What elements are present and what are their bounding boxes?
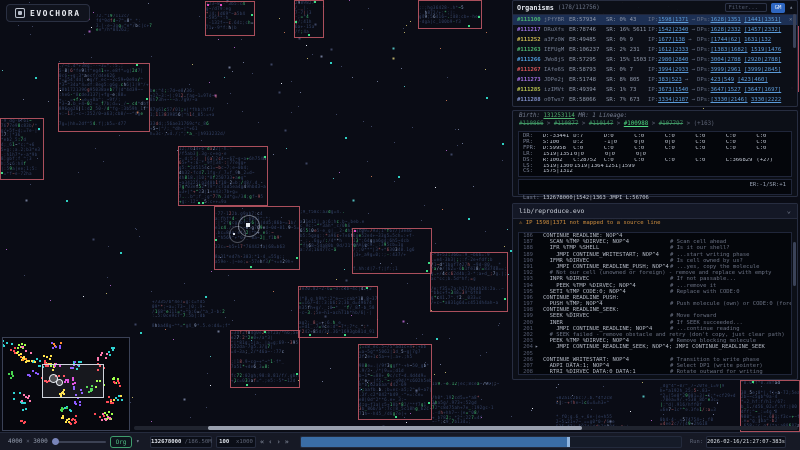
lineage-link[interactable]: #110877 [554,121,578,127]
organism-energy: ER:58066 [569,95,606,105]
cluster-corner-marker [308,34,310,36]
horizontal-scrollbar-thumb[interactable] [208,426,582,430]
code-line: 208 RTRI %DIRVEC DATA:0 DATA:1# Rotate o… [519,369,791,375]
organism-energy: ER:49485 [569,35,606,45]
teal-marker [120,252,122,254]
organism-dps: DPs:3999|2961 [3999|2845] [697,65,797,75]
world-size-x: × [22,438,33,445]
organism-ip: IP:383|523 → [648,75,697,85]
lineage-label: Lineage: [599,113,627,119]
register-value: C:0 [634,158,665,164]
warning-text: IP 1598|1371 not mapped to a source line [522,220,660,226]
organism-cluster[interactable]: be;^4;:7d~e8/36: +17~3:~|;912.fag~1=97d~… [150,84,234,141]
playback-controls: « ‹ › » [260,433,289,450]
starfield [0,0,1,1]
organism-energy: ER:57934 [569,15,606,25]
organism-name: DRuXfs [544,25,569,35]
cluster-corner-marker [198,202,200,204]
ip-link[interactable]: 3994|2933 [658,67,688,73]
cluster-corner-marker [250,266,252,268]
organism-dps: DPs:1628|1351 [1441|1351] [697,15,789,25]
cluster-corner-marker [366,287,368,289]
lineage-separator: > [648,121,658,127]
organism-energy: ER:58793 [569,65,606,75]
ip-link[interactable]: 1677|138 [658,37,685,43]
organism-row[interactable]: #111267IAfe6SER:58793SR: 0% 7IP:3994|293… [513,65,797,75]
dp-link[interactable]: 1628|2332 [710,27,740,33]
cluster-corner-marker [246,384,248,386]
organism-ip: IP:3994|2933 → [648,65,697,75]
world-size-label: 4000 × 3000 [8,433,48,450]
ip-world-marker [246,223,250,227]
last-er-sr: ER:-1/SR:+1 [750,182,786,189]
organism-row[interactable]: #111100jPfYBRER:57934SR: 0% 43IP:1598|13… [513,15,797,25]
code-listing: 186CONTINUE_READLINE: NOP^4187 SCAN %TMP… [518,232,792,375]
speed-multiplier: x1000 [229,439,253,445]
organism-id: #111252 [517,35,544,45]
organism-cluster[interactable]: +7335/b*4e7=g:c=fd5 09**;~a=;73~_|0;.9- … [152,300,230,330]
dp-link[interactable]: [3330|2146] [710,97,747,103]
organism-ip: IP:1598|1371 → [648,15,697,25]
app-logo[interactable]: EVOCHORA [6,4,90,22]
lineage-link[interactable]: #100988 [624,121,648,127]
lineage-separator: > [578,121,588,127]
organism-sr: SR: 0% 7 [606,65,648,75]
teal-marker [35,77,37,79]
organism-sr: SR: 15% 1503 [606,55,648,65]
bottom-toolbar: 4000 × 3000 Org ▾ 132678000 /186.50M 100… [0,432,800,450]
lineage-separator: > [613,121,623,127]
organism-row[interactable]: #111273JDPe2jER:51748SR: 8% 805IP:383|52… [513,75,797,85]
organism-energy: ER:106237 [569,45,606,55]
last-value: 132678000|1542|1363 JMPI L:56706 [543,195,649,201]
organism-row[interactable]: #111217DRuXfsER:78746SR: 16% 5611IP:1542… [513,25,797,35]
organisms-panel-header: Organisms (178/112756) GM ▴ [513,1,797,15]
org-view-caret-icon[interactable]: ▾ [136,433,140,450]
organism-row[interactable]: #111263IEFUgMER:106237SR: 2% 231IP:1612|… [513,45,797,55]
cluster-corner-marker [395,416,397,418]
cluster-corner-marker [296,257,298,259]
organism-cluster[interactable]: 123~8_-^3b5:c4 g~/d79:eg *|4:|d69^~a5b4 … [205,1,255,36]
organism-id: #111267 [517,65,544,75]
organism-row[interactable]: #111288o0Tws7ER:58066SR: 7% 673IP:3334|2… [513,95,797,105]
organism-details-panel: Birth: 131253114 MR: 1 Lineage: #110866 … [512,110,798,197]
organisms-title: Organisms [517,4,554,12]
cluster-corner-marker [752,381,754,383]
dp-link[interactable]: [1441|1351] [744,17,781,23]
ip-link[interactable]: 383|523 [658,77,682,83]
organism-cluster[interactable]: 3e=0.82~2-6=~d:c4b~4c|42;2 |*8.g_h9h^:2^… [298,286,378,338]
cluster-corner-marker [136,64,138,66]
cluster-corner-marker [202,202,204,204]
source-file-select[interactable]: lib/reproduce.evo ⌄ [513,204,797,219]
birth-label: Birth: [519,113,543,119]
cluster-corner-marker [309,334,311,336]
cluster-corner-marker [146,98,148,100]
teal-marker [140,332,142,334]
organism-cluster[interactable]: 72.^197112c/ f4^9dfd~7^=8*_*: 3.|-e~3gg=… [96,14,158,36]
cluster-corner-marker [296,373,298,375]
birth-line: Birth: 131253114 MR: 1 Lineage: [519,113,627,120]
organism-sr: SR: 8% 805 [606,75,648,85]
organism-energy: ER:78746 [569,25,606,35]
zoom-slider-knob[interactable] [52,438,59,445]
source-warning: ⚠ IP 1598|1371 not mapped to a source li… [519,220,660,226]
organism-sr: SR: 16% 5611 [606,25,648,35]
organism-cluster[interactable]: 1a9.~e.12|ec;8cea~790|;~ /h0*.192cd5=+*a… [432,382,508,428]
org-view-button[interactable]: Org [110,436,132,448]
organism-cluster[interactable]: ;=c8_ec.5~/5^ad1c+4+;+bb =a~5g^*5062|1d_… [358,344,432,420]
last-label: Last: [523,195,543,201]
teal-marker [345,137,347,139]
register-value: 1575|1312 [543,169,574,175]
dp-link[interactable]: [1457|2332] [744,27,781,33]
organism-sr: SR: 0% 43 [606,15,648,25]
organism-dps: DPs:423|549 [423|460] [697,75,797,85]
ip-link[interactable]: 3673|1540 [658,87,688,93]
step-forward-icon[interactable]: › [276,433,280,450]
organism-row[interactable]: #111252a3Fz0WER:49485SR: 0% 9IP:1677|138… [513,35,797,45]
lineage-line: #110866 > #110877 > #110147 > #100988 > … [519,121,715,128]
dp-link[interactable]: [3647|1697] [744,87,781,93]
organism-cluster[interactable]: ^0.07f*0.38fad 38_5e:8*|.f|+a-72;5ea 2b~… [740,380,800,432]
organism-dps: DPs:[1744|62] 1631|132 [697,35,797,45]
organisms-scrollbar[interactable] [793,14,796,48]
dp-link[interactable]: [3999|2845] [744,67,781,73]
run-timestamp: 2026-02-16/21:27:07-383s [706,436,786,448]
lineage-separator: > [543,121,553,127]
organism-dps: DPs:[1383|1682] 1519|1476 [697,45,797,55]
organism-row[interactable]: #111266JWo8jSER:57295SR: 15% 1503IP:2980… [513,55,797,65]
organism-name: jPfYBR [544,15,569,25]
organism-sr: SR: 0% 9 [606,35,648,45]
last-next-box: Last: 132678000|1542|1363 JMPI L:56706ER… [518,179,792,195]
organism-dps: DPs:3004|2788 [2920|2788] [697,55,797,65]
organism-sr: SR: 2% 231 [606,45,648,55]
cluster-corner-marker [1,172,3,174]
register-value: (+27) [756,158,787,164]
organism-dps: DPs:3647|1527 [3647|1697] [697,85,797,95]
organism-cluster[interactable]: 12;/614+6^da22|-h.- /f5ab3|.3g-c+eg-e ~.… [178,146,268,206]
horizontal-scrollbar[interactable] [134,426,798,430]
chevron-down-icon: ⌄ [787,207,791,215]
teal-marker [205,296,207,298]
ip-link[interactable]: 2980|2840 [658,57,688,63]
organism-ip: IP:1677|138 → [648,35,697,45]
ip-link[interactable]: 1598|1371 [658,17,688,23]
minimap[interactable] [2,337,130,431]
organisms-panel: Organisms (178/112756) GM ▴ #111100jPfYB… [512,0,798,107]
code-comment: # Rotate outward for writing [670,369,763,375]
step-forward-fast-icon[interactable]: » [285,433,289,450]
organism-ip: IP:1542|2340 → [648,25,697,35]
organism-ip: IP:1612|2333 → [648,45,697,55]
collapse-icon[interactable]: ▴ [789,4,793,11]
cluster-corner-marker [504,298,506,300]
last-line: Last: 132678000|1542|1363 JMPI L:56706ER… [523,195,787,202]
registers-box: DR:D:-33441D:7D:0C:0C:0C:0C:0C:0PR:S:100… [518,131,792,177]
minimap-content [3,338,5,340]
magenta-marker [207,4,209,6]
register-value: C:0 [665,158,696,164]
line-number: 208 [519,369,533,375]
organism-cluster[interactable]: -77-122b.g9ab7:c4 a:fhf*4-_8;-b933^:*: :… [214,206,300,270]
selection-ring [229,226,246,243]
teal-marker [330,62,332,64]
teal-marker [468,218,470,220]
organism-dps: DPs:1628|2332 [1457|2332] [697,25,797,35]
register-value: 1251|1599 [605,164,636,170]
organism-cluster[interactable]: ==cg9=793;1*f67/|3e46 6ge52e4+~33g5=5ch=… [352,228,432,274]
teal-marker [502,143,504,145]
organism-name: izIMVt [544,85,569,95]
organism-energy: ER:51748 [569,75,606,85]
tick-value: 132678000 [151,439,181,445]
organism-name: IAfe6S [544,65,569,75]
register-label: CS: [523,169,543,175]
dp-link[interactable]: 423|549 [710,77,734,83]
organism-cluster[interactable]: ;:;hg36428-.h*~5 ._h872/+:*;|; g49;56416… [418,0,482,29]
cluster-corner-marker [251,14,253,16]
organism-id: #111217 [517,25,544,35]
cluster-corner-marker [478,16,480,18]
organism-name: a3Fz0W [544,35,569,45]
organism-id: #111266 [517,55,544,65]
lineage-link[interactable]: #107797 [659,121,683,127]
speed-control[interactable]: 100 x1000 [216,436,256,448]
lineage-more: (+163) [694,121,715,127]
source-panel: lib/reproduce.evo ⌄ ⚠ IP 1598|1371 not m… [512,203,798,380]
organism-cluster[interactable]: =3df2f8dg0e2=ef2a/*h6;5e e27:2*2e0+/a*3|… [230,330,300,388]
dp-link[interactable]: 1631|132 [744,37,771,43]
organism-id: #111285 [517,85,544,95]
dp-world-marker [233,233,235,235]
code-text: RTRI %DIRVEC DATA:0 DATA:1 [543,369,636,375]
evochora-app: 72.^197112c/ f4^9dfd~7^=8*_*: 3.|-e~3gg=… [0,0,800,450]
organism-id: #111100 [517,15,544,25]
cluster-corner-marker [468,25,470,27]
timeline-scrubber-fill [301,437,569,447]
cluster-corner-marker [264,331,266,333]
organism-sr: SR: 7% 673 [606,95,648,105]
organism-row[interactable]: #111285izIMVtER:49394SR: 1% 73IP:3673|15… [513,85,797,95]
organism-sr: SR: 1% 73 [606,85,648,95]
lineage-link[interactable]: #110147 [589,121,613,127]
world-height: 3000 [33,438,47,445]
timeline-scrubber-handle[interactable] [567,437,570,447]
register-value: 1519|1364 [574,164,605,170]
organism-id: #111263 [517,45,544,55]
teal-marker [398,176,400,178]
organism-name: IEFUgM [544,45,569,55]
register-value: C:0 [756,146,787,152]
run-label: Run: [690,433,703,450]
speed-value: 100 [219,439,229,445]
magenta-marker [220,4,222,6]
teal-marker [38,128,40,130]
organism-ip: IP:2980|2840 → [648,55,697,65]
organism-ip: IP:3334|2187 → [648,95,697,105]
register-value: C:0 [665,146,696,152]
organism-cluster[interactable]: 2989827 /__|. 7-7||3 -;=*4 g/;41h 6a+-15… [294,0,324,38]
organism-name: o0Tws7 [544,95,569,105]
app-title: EVOCHORA [30,9,81,18]
birth-link[interactable]: 131253114 [543,113,574,119]
dp-link[interactable]: 1628|1351 [710,17,740,23]
organism-energy: ER:57295 [569,55,606,65]
tick-total: /186.50M [181,439,211,445]
organism-dps: DPs:[3330|2146] 3330|2222 [697,95,797,105]
world-width: 4000 [8,438,22,445]
tick-counter: 132678000 /186.50M [150,436,212,448]
organism-ip: IP:3673|1540 → [648,85,697,95]
dp-link[interactable]: 3330|2222 [751,97,781,103]
organism-id: #111288 [517,95,544,105]
cluster-corner-marker [426,270,428,272]
register-value: L:366829 [726,158,757,164]
teal-marker [486,97,488,99]
cluster-corner-marker [264,156,266,158]
dp-link[interactable]: 3999|2961 [710,67,740,73]
organism-cluster[interactable]: ~^d+53:366=:9_~b66=:9 .=e4-3b3|;;:f-2e+f… [430,252,508,312]
teal-marker [436,338,438,340]
cluster-corner-marker [295,21,297,23]
step-back-fast-icon[interactable]: « [260,433,264,450]
organism-id: #111273 [517,75,544,85]
cluster-corner-marker [428,402,430,404]
organism-cluster[interactable]: ./~c.d*+38g:--~3=*.:5.; 5-8|6*fe91f^eg41… [58,63,150,132]
dp-link[interactable]: [1383|1682] [710,47,747,53]
register-row: CS:1575|1312 [523,169,787,175]
dp-link[interactable]: 3647|1527 [710,87,740,93]
ip-link[interactable]: 1542|2340 [658,27,688,33]
lineage-separator: > [683,121,693,127]
cluster-corner-marker [215,239,217,241]
zoom-slider-track[interactable] [56,441,106,443]
dp-link[interactable]: [2920|2788] [744,57,781,63]
organism-name: JWo8jS [544,55,569,65]
magenta-marker [354,230,356,232]
minimap-selection-ring [56,379,63,386]
register-value: C:0 [726,146,757,152]
organisms-list: #111100jPfYBRER:57934SR: 0% 43IP:1598|13… [513,15,797,105]
dp-link[interactable]: [423|460] [737,77,767,83]
teal-marker [66,200,68,202]
filter-input[interactable] [725,3,767,12]
source-scrollbar[interactable] [793,242,796,286]
organism-cluster[interactable]: _dg^4^-0/^_7~20fe_1=9|9 h+*a192h_25;5-.8… [660,384,736,430]
ip-link[interactable]: 1612|2333 [658,47,688,53]
cluster-corner-marker [344,334,346,336]
mr-label: MR: 1 [575,113,599,119]
organisms-count: (178/112756) [558,5,600,11]
register-value: C:0 [695,146,726,152]
organism-cluster[interactable]: +82a1c2bc:/.b.*4f2c8 6|:~+fhe~1c6=4=h3+^… [556,396,628,430]
timeline-scrubber[interactable] [300,436,682,448]
gm-button[interactable]: GM [771,3,786,13]
dp-link[interactable]: 1519|1476 [751,47,781,53]
source-file-name: lib/reproduce.evo [519,207,584,215]
lineage-link[interactable]: #110866 [519,121,543,127]
dp-link[interactable]: 3004|2788 [710,57,740,63]
dp-link[interactable]: [1744|62] [710,37,740,43]
app-logo-icon [15,8,25,18]
step-back-icon[interactable]: ‹ [268,433,272,450]
organism-name: JDPe2j [544,75,569,85]
register-value: C:0 [695,158,726,164]
cluster-corner-marker [314,1,316,3]
organism-energy: ER:49394 [569,85,606,95]
ip-link[interactable]: 3334|2187 [658,97,688,103]
